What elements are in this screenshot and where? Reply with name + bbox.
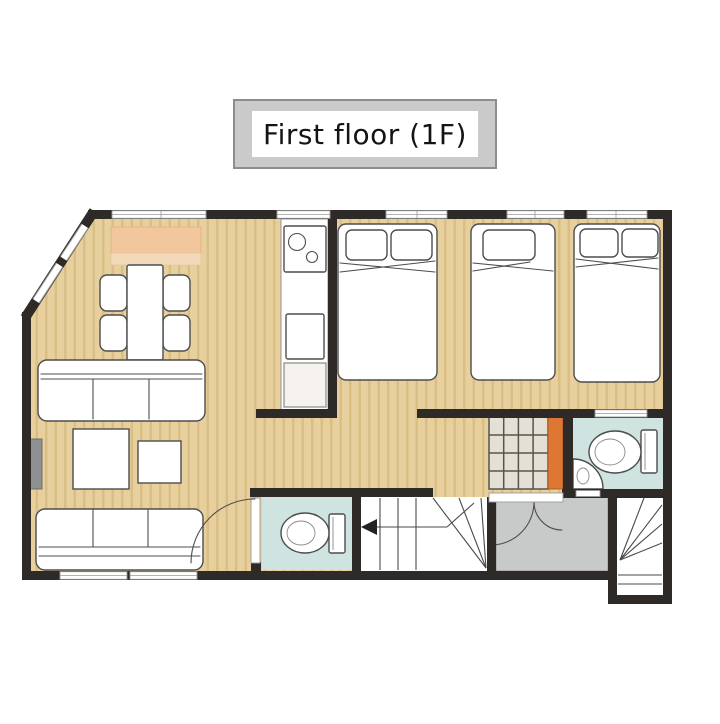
wall-left <box>22 312 31 580</box>
rug <box>111 227 201 253</box>
toilet-tank <box>329 514 345 553</box>
staircase <box>361 497 487 571</box>
closet-door <box>548 417 563 489</box>
coffee-table-large <box>73 429 129 489</box>
pillow <box>580 229 618 257</box>
bed-1 <box>338 224 437 380</box>
kitchen <box>281 219 328 410</box>
dining-chair <box>100 315 127 351</box>
wall-ext-bottom <box>608 595 672 604</box>
toilet <box>281 513 345 553</box>
toilet-bowl <box>281 513 329 553</box>
toilet-room-left <box>262 497 352 570</box>
toilet <box>589 430 657 473</box>
wall-genkan-right <box>608 497 617 604</box>
sofa-lower <box>36 509 203 570</box>
floor-plan-drawing <box>0 0 720 724</box>
toilet-left-door-leaf <box>251 498 260 563</box>
bed-2 <box>471 224 555 380</box>
toilet-tank <box>641 430 657 473</box>
rug-fringe <box>111 253 201 265</box>
sofa-upper <box>38 360 205 421</box>
wall-kitchen-right <box>328 219 337 418</box>
kitchen-sink <box>286 314 324 359</box>
toilet-door-gap <box>576 491 600 497</box>
dining-chair <box>163 315 190 351</box>
refrigerator <box>284 363 326 407</box>
pillow <box>483 230 535 260</box>
exterior-steps <box>617 497 663 595</box>
wall-toilet-row-top <box>250 488 433 497</box>
closet <box>489 417 563 489</box>
wall-stairs-genkan <box>487 497 496 580</box>
bed-3 <box>574 224 660 382</box>
wall-toiletR-left <box>563 417 573 490</box>
genkan-threshold <box>489 493 563 502</box>
coffee-table-small <box>138 441 181 483</box>
dining-chair <box>163 275 190 311</box>
toilet-room-right <box>573 417 663 490</box>
stove <box>284 226 326 272</box>
genkan-floor <box>496 497 608 571</box>
pillow <box>346 230 387 260</box>
toilet-bowl <box>589 431 641 473</box>
bedroom-area <box>338 224 660 382</box>
wall-kitchen-stub <box>256 409 337 418</box>
dining-chair <box>100 275 127 311</box>
entrance-genkan <box>491 497 608 571</box>
wall-right <box>663 210 672 604</box>
wall-toilet-stairs <box>352 488 361 580</box>
exterior-step-floor <box>617 497 663 595</box>
pillow <box>622 229 658 257</box>
pillow <box>391 230 432 260</box>
floor-plan-page: First floor (1F) <box>0 0 720 724</box>
dining-table <box>127 265 163 360</box>
